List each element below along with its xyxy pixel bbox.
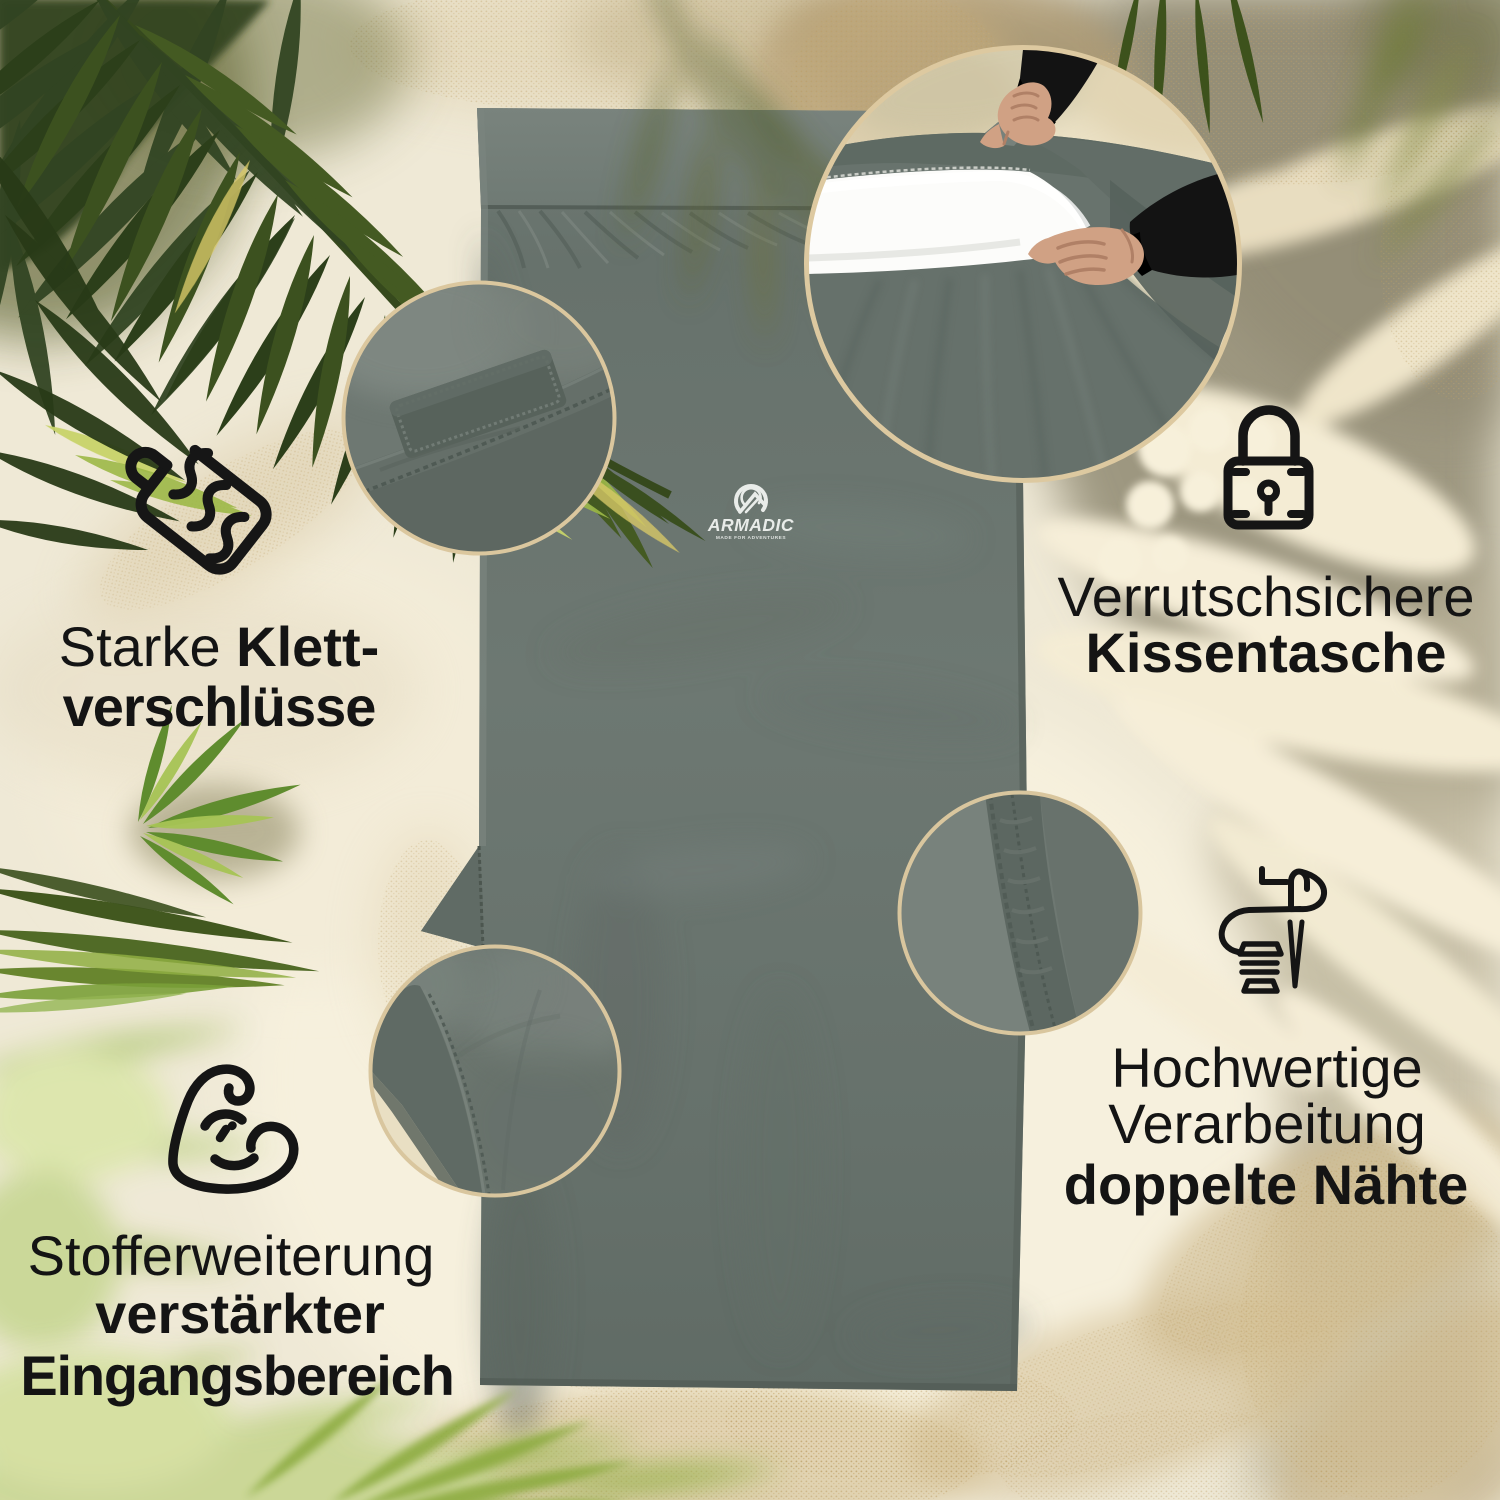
svg-text:Verarbeitung: Verarbeitung [1108,1092,1426,1155]
svg-text:verstärkter: verstärkter [95,1282,385,1345]
svg-text:doppelte Nähte: doppelte Nähte [1064,1153,1468,1216]
svg-text:Hochwertige: Hochwertige [1111,1036,1422,1099]
svg-text:Eingangsbereich: Eingangsbereich [20,1344,453,1407]
svg-text:Verrutschsichere: Verrutschsichere [1057,565,1474,628]
svg-text:ARMADIC: ARMADIC [707,515,794,535]
svg-text:MADE FOR ADVENTURES: MADE FOR ADVENTURES [716,535,786,541]
svg-text:Starke Klett-: Starke Klett- [59,615,380,678]
svg-text:Stofferweiterung: Stofferweiterung [28,1224,435,1287]
svg-text:verschlüsse: verschlüsse [63,675,376,738]
svg-text:Kissentasche: Kissentasche [1085,621,1446,684]
